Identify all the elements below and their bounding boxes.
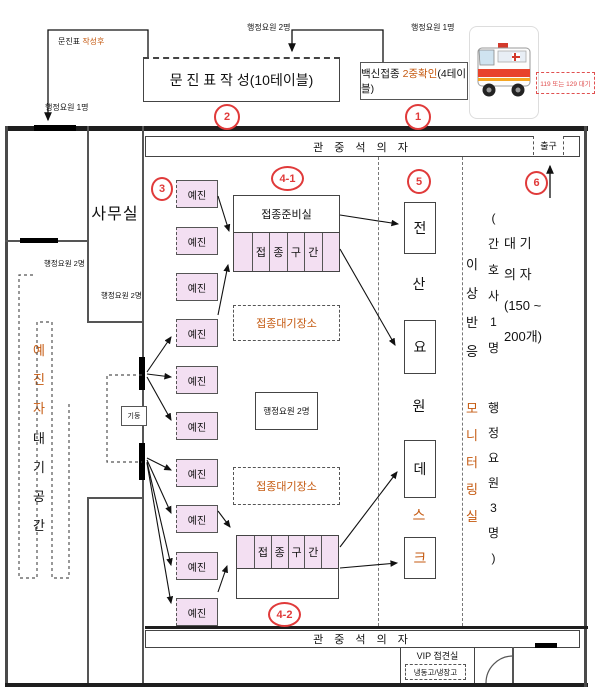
zone-cell: 종 [269, 233, 286, 271]
monitoring-staff-col-2: 행 정 요 원 3 명 ) [488, 396, 499, 571]
corridor-label-top: 예진자 [31, 336, 47, 423]
entrance-door [34, 125, 76, 131]
zone-cell [237, 536, 254, 568]
itdesk-char-box-5: 데 [404, 440, 436, 498]
zone-cell [321, 536, 338, 568]
staff-label-top-left: 행정요원 1명 [45, 102, 88, 113]
waiting-chairs-label: 대 기 의 자 (150 ~ 200개) [504, 228, 580, 352]
hall-door-upper [139, 357, 145, 390]
badge-4-2: 4-2 [268, 602, 301, 627]
screening-box-4: 예진 [176, 319, 218, 347]
staff-label-mid: 행정요원 2명 [247, 22, 290, 33]
vaccine-check-label: 백신접종 2중확인(4테이블) [361, 66, 467, 96]
itdesk-char-box-3: 요 [404, 320, 436, 374]
staff-label-top-right: 행정요원 1명 [411, 22, 454, 33]
office-staff-b: 행정요원 2명 [101, 290, 142, 301]
itdesk-char-box-1: 전 [404, 202, 436, 254]
itdesk-char-box-7: 크 [404, 537, 436, 579]
hall-separator-2 [462, 157, 463, 626]
screening-box-1: 예진 [176, 180, 218, 208]
badge-4-1: 4-1 [271, 166, 304, 191]
pillar-box: 기둥 [121, 406, 147, 426]
zone-cell: 구 [288, 536, 305, 568]
screening-box-8: 예진 [176, 505, 218, 533]
zone-cell [234, 233, 252, 271]
screening-box-5: 예진 [176, 366, 218, 394]
wall-top [5, 126, 588, 131]
door-arc [486, 656, 513, 683]
hall-separator-1 [378, 157, 379, 626]
vaccination-center-floorplan: 문 진 표 작 성(10테이블) 백신접종 2중확인(4테이블) 문진표 작성후… [0, 0, 600, 690]
injection-wait-area-2: 접종대기장소 [233, 467, 340, 505]
screening-box-3: 예진 [176, 273, 218, 301]
zone-cell [322, 233, 339, 271]
vip-room: VIP 접견실 냉동고/냉장고 [400, 647, 475, 683]
questionnaire-station-box: 문 진 표 작 성(10테이블) [143, 57, 340, 102]
itdesk-char-4: 원 [404, 396, 434, 416]
injection-station-2: 접 종 구 간 [236, 535, 339, 599]
ambulance-graphic [472, 33, 536, 113]
after-form-flow-label: 문진표 작성후 [58, 36, 104, 47]
monitoring-label-2: 모니터링실 [464, 395, 480, 530]
screening-box-7: 예진 [176, 459, 218, 487]
zone-cell: 구 [287, 233, 304, 271]
office-name: 사무실 [88, 200, 142, 224]
screening-box-2: 예진 [176, 227, 218, 255]
injection-station-1: 접종준비실 접 종 구 간 [233, 195, 340, 272]
office-staff-a: 행정요원 2명 [44, 258, 85, 269]
questionnaire-station-label: 문 진 표 작 성(10테이블) [170, 70, 314, 90]
zone-cell: 접 [252, 233, 269, 271]
office-wall-bottom [87, 321, 144, 323]
badge-6: 6 [525, 171, 548, 195]
badge-1: 1 [405, 104, 431, 130]
badge-3: 3 [151, 177, 173, 201]
exit-sign: 출구 [533, 136, 564, 155]
hall-door-lower [139, 443, 145, 480]
zone-cell: 접 [254, 536, 271, 568]
injection-zone-1: 접 종 구 간 [234, 232, 339, 271]
spectator-seats-top: 관 중 석 의 자 [145, 136, 580, 157]
monitoring-staff-col-1: ( 간 호 사 1 명 [488, 205, 499, 361]
screening-box-10: 예진 [176, 598, 218, 626]
hall-wall-left [142, 126, 144, 683]
wall-right [584, 126, 587, 687]
badge-5: 5 [407, 169, 431, 194]
fridge-box: 냉동고/냉장고 [405, 664, 466, 680]
itdesk-char-6: 스 [404, 505, 434, 525]
storage-wall-top [87, 497, 144, 499]
wall-bottom [5, 683, 588, 687]
injection-station-2-lower [237, 569, 338, 598]
badge-2: 2 [214, 104, 240, 130]
zone-cell: 간 [304, 233, 321, 271]
bottom-room-wall [512, 647, 514, 683]
side-door [20, 238, 58, 243]
injection-zone-2: 접 종 구 간 [237, 536, 338, 569]
office-wall-left [87, 126, 89, 322]
screening-box-9: 예진 [176, 552, 218, 580]
corridor-label-bottom: 대기공간 [31, 424, 47, 540]
spectator-seats-bottom: 관 중 석 의 자 [145, 630, 580, 648]
screening-box-6: 예진 [176, 412, 218, 440]
prep-room-label: 접종준비실 [234, 196, 339, 232]
admin-staff-box: 행정요원 2명 [255, 392, 318, 430]
hall-wall-bottom [145, 626, 588, 629]
ambulance-wait-note: 119 또는 129 대기 [536, 72, 595, 94]
wall-left [5, 126, 8, 687]
zone-cell: 간 [304, 536, 321, 568]
vip-room-label: VIP 접견실 [401, 649, 474, 662]
vaccine-check-station-box: 백신접종 2중확인(4테이블) [360, 62, 468, 100]
bottom-door [535, 643, 557, 648]
ambulance-image [469, 26, 539, 119]
injection-wait-area-1: 접종대기장소 [233, 305, 340, 341]
zone-cell: 종 [271, 536, 288, 568]
monitoring-label-1: 이상반응 [464, 250, 480, 366]
itdesk-char-2: 산 [404, 274, 434, 294]
storage-wall-left [87, 497, 89, 683]
